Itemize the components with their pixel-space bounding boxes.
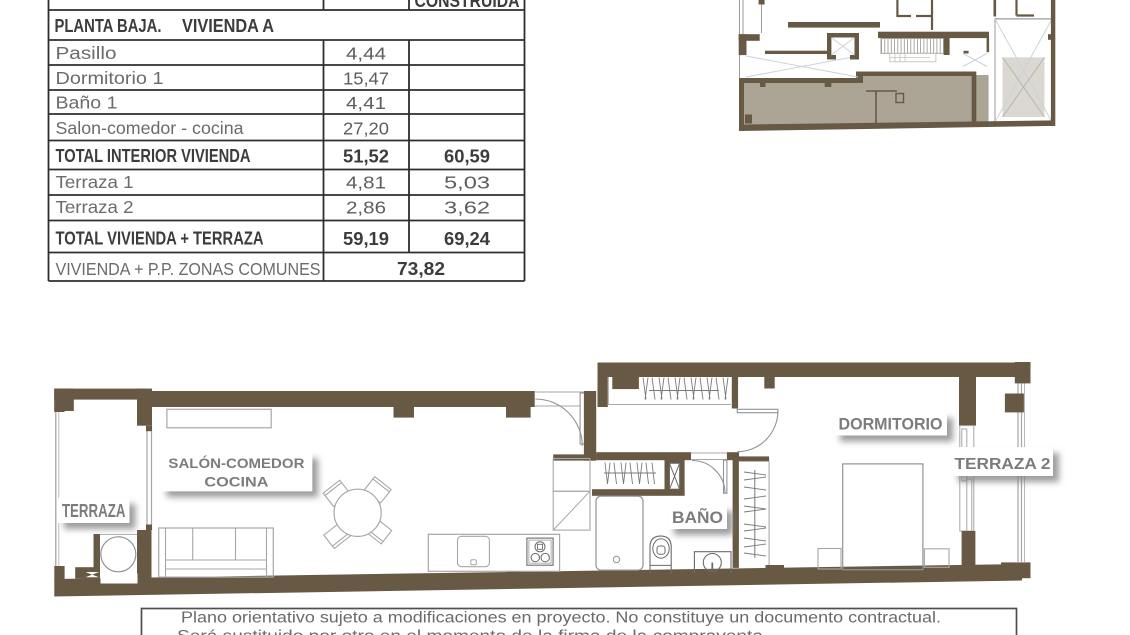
svg-text:Terraza 1: Terraza 1 xyxy=(56,172,134,192)
svg-text:Pasillo: Pasillo xyxy=(56,43,117,63)
svg-text:4,41: 4,41 xyxy=(346,93,386,113)
svg-text:SALÓN-COMEDOR: SALÓN-COMEDOR xyxy=(168,456,304,471)
svg-text:5,03: 5,03 xyxy=(444,173,490,193)
svg-text:VIVIENDA A: VIVIENDA A xyxy=(182,15,274,36)
svg-text:Será sustituido por otro en el: Será sustituido por otro en el momento d… xyxy=(177,628,763,635)
svg-text:TERRAZA 2: TERRAZA 2 xyxy=(955,456,1051,473)
svg-text:PLANTA BAJA.: PLANTA BAJA. xyxy=(55,15,162,36)
svg-text:CONSTRUIDA: CONSTRUIDA xyxy=(415,0,520,11)
svg-text:4,44: 4,44 xyxy=(346,44,386,64)
svg-text:TOTAL VIVIENDA + TERRAZA: TOTAL VIVIENDA + TERRAZA xyxy=(56,228,264,249)
svg-text:15,47: 15,47 xyxy=(343,69,389,89)
svg-text:Dormitorio 1: Dormitorio 1 xyxy=(56,68,164,88)
svg-text:60,59: 60,59 xyxy=(444,146,490,167)
svg-text:69,24: 69,24 xyxy=(444,228,491,249)
svg-text:Terraza 2: Terraza 2 xyxy=(56,197,134,217)
svg-text:VIVIENDA + P.P. ZONAS COMUNES: VIVIENDA + P.P. ZONAS COMUNES xyxy=(56,259,321,279)
svg-text:Salon-comedor - cocina: Salon-comedor - cocina xyxy=(56,118,244,138)
svg-text:Baño 1: Baño 1 xyxy=(56,93,118,113)
svg-text:TOTAL INTERIOR VIVIENDA: TOTAL INTERIOR VIVIENDA xyxy=(56,145,251,166)
svg-text:2,86: 2,86 xyxy=(346,198,386,218)
svg-text:4,81: 4,81 xyxy=(346,173,386,193)
svg-text:3,62: 3,62 xyxy=(444,198,490,218)
svg-text:TERRAZA: TERRAZA xyxy=(62,500,126,521)
svg-text:27,20: 27,20 xyxy=(343,119,389,139)
svg-text:Plano orientativo sujeto a mod: Plano orientativo sujeto a modificacione… xyxy=(181,610,941,627)
svg-text:DORMITORIO: DORMITORIO xyxy=(839,416,943,434)
svg-text:BAÑO: BAÑO xyxy=(672,507,723,527)
svg-text:51,52: 51,52 xyxy=(343,146,389,167)
svg-text:73,82: 73,82 xyxy=(397,258,445,279)
svg-text:59,19: 59,19 xyxy=(343,228,389,249)
svg-text:COCINA: COCINA xyxy=(204,475,268,490)
